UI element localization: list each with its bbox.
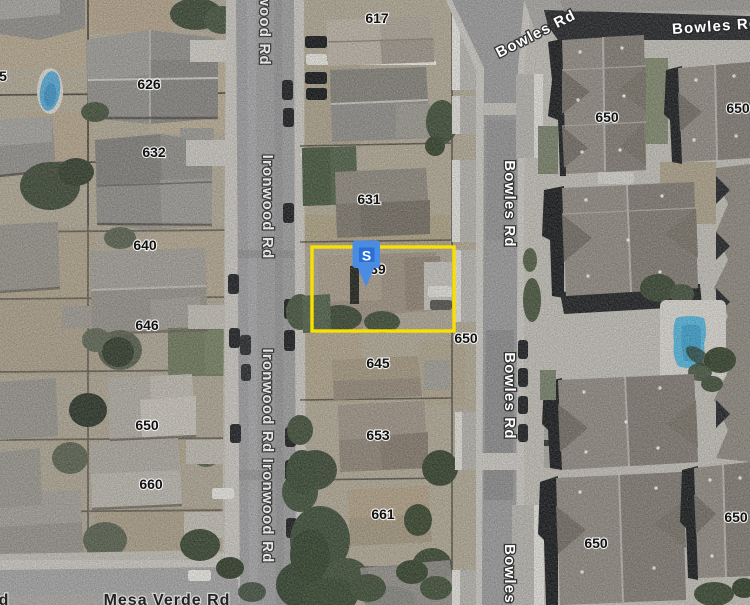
svg-text:632: 632: [142, 144, 166, 160]
svg-text:645: 645: [366, 355, 390, 371]
svg-text:650: 650: [726, 100, 750, 116]
svg-text:626: 626: [137, 76, 161, 92]
svg-text:650: 650: [595, 109, 619, 125]
svg-text:Mesa Verde Rd: Mesa Verde Rd: [104, 592, 231, 605]
svg-text:617: 617: [365, 10, 389, 26]
svg-text:650: 650: [135, 417, 159, 433]
svg-text:Bowles Rd: Bowles Rd: [501, 160, 518, 247]
svg-text:Bowles Rd: Bowles Rd: [501, 352, 518, 439]
svg-text:640: 640: [133, 237, 157, 253]
svg-text:631: 631: [357, 191, 381, 207]
svg-text:650: 650: [454, 330, 478, 346]
svg-text:5: 5: [0, 68, 7, 84]
svg-text:650: 650: [724, 509, 748, 525]
svg-text:660: 660: [139, 476, 163, 492]
svg-text:650: 650: [584, 535, 608, 551]
svg-text:d: d: [0, 592, 9, 605]
svg-text:646: 646: [135, 317, 159, 333]
svg-text:653: 653: [366, 427, 390, 443]
svg-text:661: 661: [371, 506, 395, 522]
svg-text:S: S: [362, 248, 371, 264]
svg-text:Bowles: Bowles: [501, 544, 518, 604]
